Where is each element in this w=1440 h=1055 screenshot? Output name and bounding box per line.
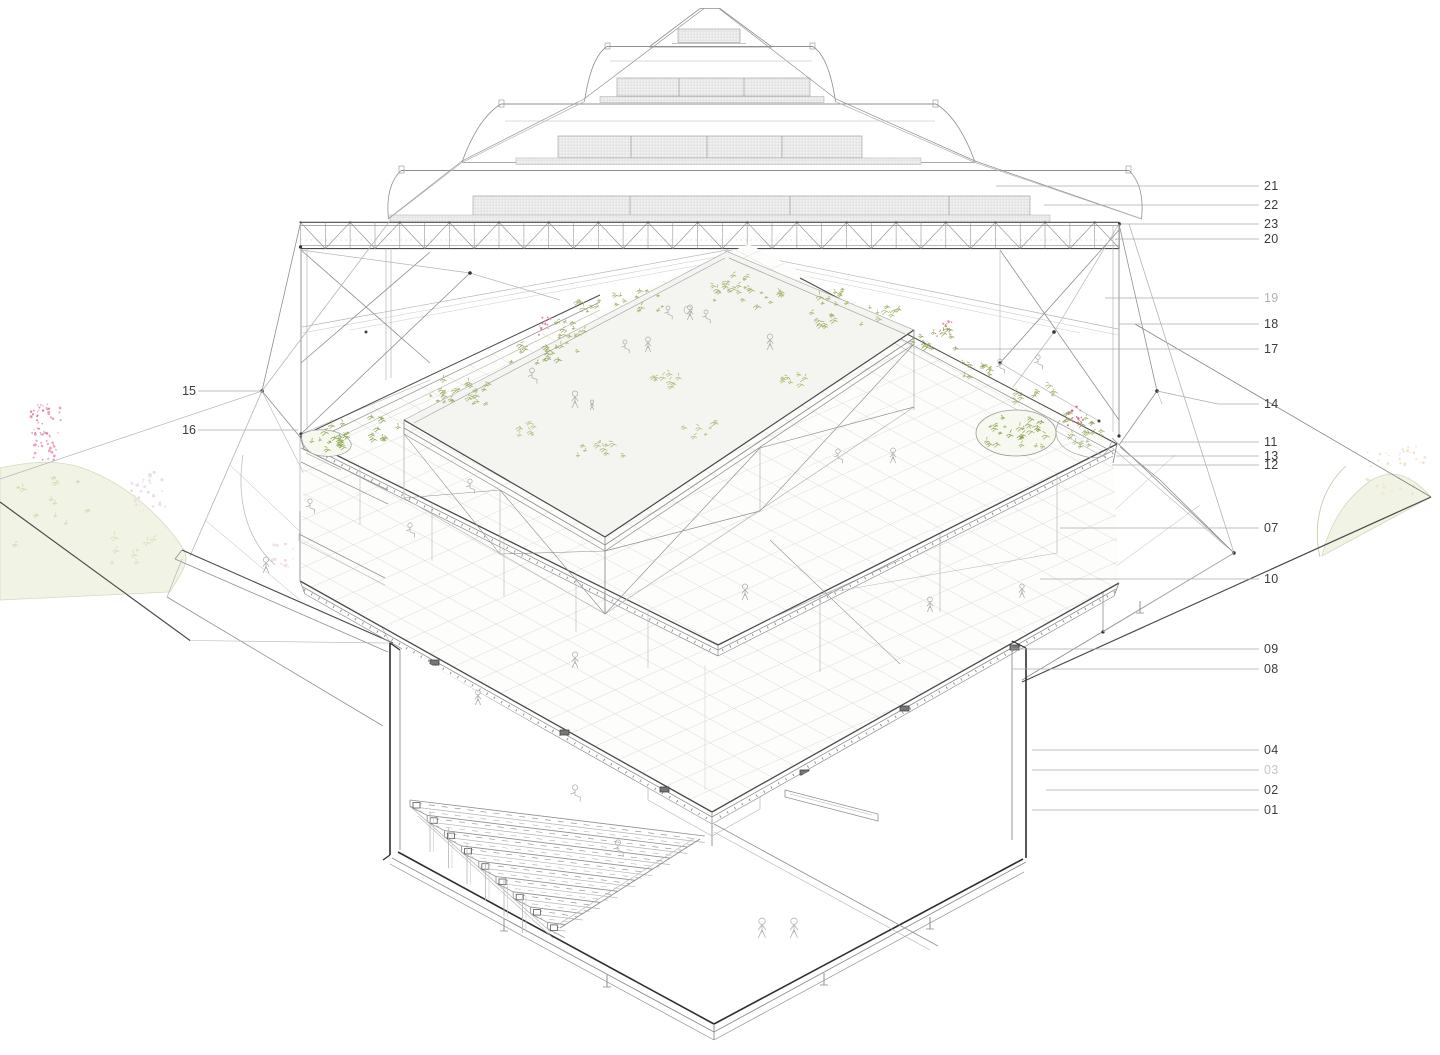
svg-text:02: 02 [1264, 783, 1279, 797]
svg-text:23: 23 [1264, 217, 1279, 231]
svg-text:17: 17 [1264, 342, 1279, 356]
svg-text:11: 11 [1264, 435, 1278, 449]
svg-text:19: 19 [1264, 291, 1279, 305]
svg-text:08: 08 [1264, 662, 1279, 676]
svg-text:03: 03 [1264, 763, 1279, 777]
svg-text:04: 04 [1264, 743, 1279, 757]
svg-text:09: 09 [1264, 642, 1279, 656]
svg-text:10: 10 [1264, 572, 1279, 586]
svg-text:15: 15 [182, 384, 196, 398]
svg-text:12: 12 [1264, 458, 1279, 472]
svg-text:21: 21 [1264, 179, 1279, 193]
svg-text:14: 14 [1264, 397, 1279, 411]
svg-text:16: 16 [182, 423, 196, 437]
svg-text:20: 20 [1264, 232, 1279, 246]
svg-text:07: 07 [1264, 521, 1279, 535]
svg-text:01: 01 [1264, 803, 1279, 817]
svg-text:18: 18 [1264, 317, 1279, 331]
svg-text:22: 22 [1264, 198, 1279, 212]
